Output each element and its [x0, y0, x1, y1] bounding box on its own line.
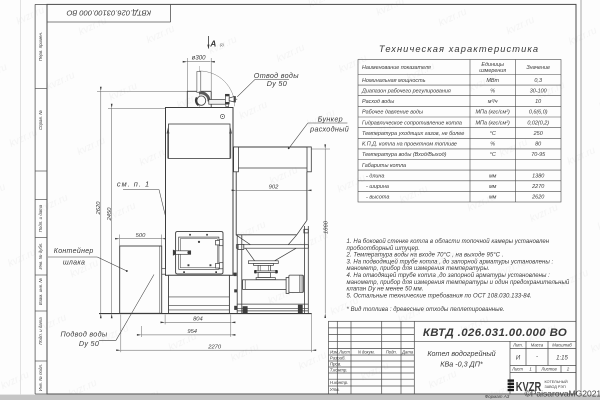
svg-text:Перв. примен.: Перв. примен.: [38, 32, 43, 61]
svg-text:2. Температура воды на входе: 2. Температура воды на входе 70°С , на в…: [346, 253, 504, 259]
svg-text:Т.контр.: Т.контр.: [330, 368, 348, 373]
svg-text:Техническая характеристика: Техническая характеристика: [379, 44, 539, 54]
svg-text:- ширина: - ширина: [366, 184, 389, 190]
svg-text:см. п. 1: см. п. 1: [117, 180, 150, 189]
svg-text:1380: 1380: [532, 174, 544, 180]
svg-text:Температура уходящих газов, не: Температура уходящих газов, не более: [362, 131, 464, 137]
svg-text:клапан Dy не менее 50 мм.: клапан Dy не менее 50 мм.: [347, 287, 424, 293]
svg-text:250: 250: [533, 131, 543, 137]
svg-text:Температура воды (Вход/Выход): Температура воды (Вход/Выход): [362, 152, 447, 158]
svg-text:2620: 2620: [96, 201, 102, 216]
svg-text:(2): (2): [220, 43, 224, 47]
svg-text:мм: мм: [489, 174, 497, 180]
svg-text:МПа (кгс/см²): МПа (кгс/см²): [476, 120, 510, 126]
svg-text:измерения: измерения: [479, 68, 506, 74]
svg-text:Dy 50: Dy 50: [79, 339, 99, 348]
svg-text:Формат А3: Формат А3: [485, 394, 510, 399]
svg-text:10: 10: [535, 99, 541, 105]
svg-text:Подп.: Подп.: [386, 349, 397, 354]
svg-text:Дата: Дата: [401, 349, 414, 354]
svg-text:КВа -0,3 ДП*: КВа -0,3 ДП*: [440, 359, 483, 368]
svg-text:Подвод воды: Подвод воды: [61, 330, 108, 339]
svg-text:5. Остальные технические треб: 5. Остальные технические требования по О…: [347, 293, 532, 299]
svg-text:Подп. и дата: Подп. и дата: [38, 317, 43, 345]
svg-text:902: 902: [269, 184, 279, 190]
svg-text:30-100: 30-100: [530, 88, 547, 94]
svg-text:1:15: 1:15: [556, 356, 568, 362]
svg-text:Изм.Лист: Изм.Лист: [330, 349, 350, 354]
svg-text:1: 1: [529, 367, 531, 372]
svg-text:* Вид топлива : древесные от: * Вид топлива : древесные отходы пеллети…: [347, 307, 505, 313]
svg-text:КВТД.026.03100.000 ВО: КВТД.026.03100.000 ВО: [66, 9, 151, 18]
svg-text:0,3: 0,3: [534, 78, 542, 84]
svg-text:- высота: - высота: [366, 195, 389, 201]
svg-text:Пров.: Пров.: [330, 362, 342, 367]
svg-text:°С: °С: [490, 152, 496, 158]
svg-text:мм: мм: [489, 195, 497, 201]
svg-text:3. На подводящей трубе котла: 3. На подводящей трубе котла , до запорн…: [347, 258, 554, 265]
svg-text:-: -: [536, 355, 538, 361]
svg-text:Инв. № подл.: Инв. № подл.: [38, 364, 43, 391]
svg-text:- длина: - длина: [366, 174, 384, 180]
svg-text:2450: 2450: [107, 207, 113, 222]
svg-text:2270: 2270: [207, 344, 222, 350]
svg-text:Утв.: Утв.: [330, 387, 340, 392]
svg-text:И: И: [516, 356, 521, 362]
svg-text:°С: °С: [490, 131, 496, 137]
svg-text:Взам. инв. №: Взам. инв. №: [38, 278, 43, 305]
svg-text:шлака: шлака: [63, 260, 85, 267]
svg-text:Н.контр.: Н.контр.: [330, 380, 349, 385]
svg-text:К.П.Д. котла на проектном топл: К.П.Д. котла на проектном топливе: [362, 142, 457, 148]
svg-text:расходный: расходный: [309, 125, 349, 134]
svg-text:2620: 2620: [531, 195, 544, 201]
svg-text:Диапазон рабочего регулировани: Диапазон рабочего регулирования: [361, 88, 451, 94]
svg-text:Расход воды: Расход воды: [362, 99, 394, 105]
svg-text:©PaisarovaMG2021: ©PaisarovaMG2021: [525, 388, 600, 398]
svg-text:МПа (кгс/см²): МПа (кгс/см²): [476, 110, 510, 116]
svg-text:4. На отводящей трубе котла ,: 4. На отводящей трубе котла ,до запорной…: [347, 272, 551, 279]
svg-text:Масштаб: Масштаб: [552, 343, 572, 348]
svg-text:мм: мм: [489, 184, 497, 190]
svg-text:Лист: Лист: [511, 367, 523, 372]
svg-text:Масса: Масса: [531, 343, 544, 348]
svg-text:2270: 2270: [531, 184, 544, 190]
svg-text:%: %: [490, 88, 495, 94]
svg-text:Гидравлическое сопротивление к: Гидравлическое сопротивление котла: [362, 120, 462, 126]
svg-text:манометр, прибор для измерения: манометр, прибор для измерения температу…: [347, 266, 490, 272]
svg-text:Номинальная мощность: Номинальная мощность: [362, 78, 426, 84]
svg-text:954: 954: [187, 329, 197, 335]
svg-text:1860: 1860: [324, 220, 330, 234]
svg-text:пробоотборный штуцер.: пробоотборный штуцер.: [347, 245, 420, 252]
svg-text:Габариты котла: Габариты котла: [362, 163, 406, 169]
svg-text:Значение: Значение: [526, 65, 550, 71]
svg-text:КВТД .026.031.00.000 ВО: КВТД .026.031.00.000 ВО: [423, 327, 567, 339]
svg-text:МВт: МВт: [486, 78, 499, 84]
svg-text:1. На боковой стенке котла в: 1. На боковой стенке котла в области топ…: [347, 238, 550, 245]
svg-text:Бункер: Бункер: [318, 114, 343, 123]
svg-text:Котел водогрейный: Котел водогрейный: [427, 349, 495, 358]
svg-text:Подп. и дата: Подп. и дата: [38, 204, 43, 232]
svg-text:Dy 50: Dy 50: [267, 79, 287, 88]
svg-text:ø300: ø300: [192, 55, 207, 62]
svg-text:Инв. № дубл.: Инв. № дубл.: [38, 242, 43, 269]
svg-text:Наименование показателя: Наименование показателя: [362, 65, 431, 71]
svg-text:Листов: Листов: [540, 367, 557, 372]
svg-text:манометр, прибор для измерения: манометр, прибор для измерения температу…: [347, 279, 570, 286]
svg-text:80: 80: [535, 142, 541, 148]
svg-text:500: 500: [136, 233, 146, 239]
svg-text:A: A: [209, 39, 216, 49]
svg-text:804: 804: [193, 317, 203, 323]
svg-text:Рабочее давление воды: Рабочее давление воды: [362, 110, 423, 116]
svg-text:Разраб.: Разраб.: [330, 356, 346, 361]
svg-text:м³/ч: м³/ч: [488, 99, 498, 105]
svg-text:Лит.: Лит.: [512, 343, 523, 348]
svg-text:0,6(6,0): 0,6(6,0): [529, 110, 548, 116]
svg-text:Справ. №: Справ. №: [38, 110, 43, 130]
svg-text:70-95: 70-95: [531, 152, 546, 158]
svg-text:КОТЕЛЬНЫЙ: КОТЕЛЬНЫЙ: [545, 380, 568, 384]
svg-text:%: %: [490, 142, 495, 148]
svg-text:0,02(0,2): 0,02(0,2): [527, 120, 549, 126]
svg-text:N докум.: N докум.: [358, 349, 375, 354]
svg-text:Контейнер: Контейнер: [54, 247, 94, 255]
